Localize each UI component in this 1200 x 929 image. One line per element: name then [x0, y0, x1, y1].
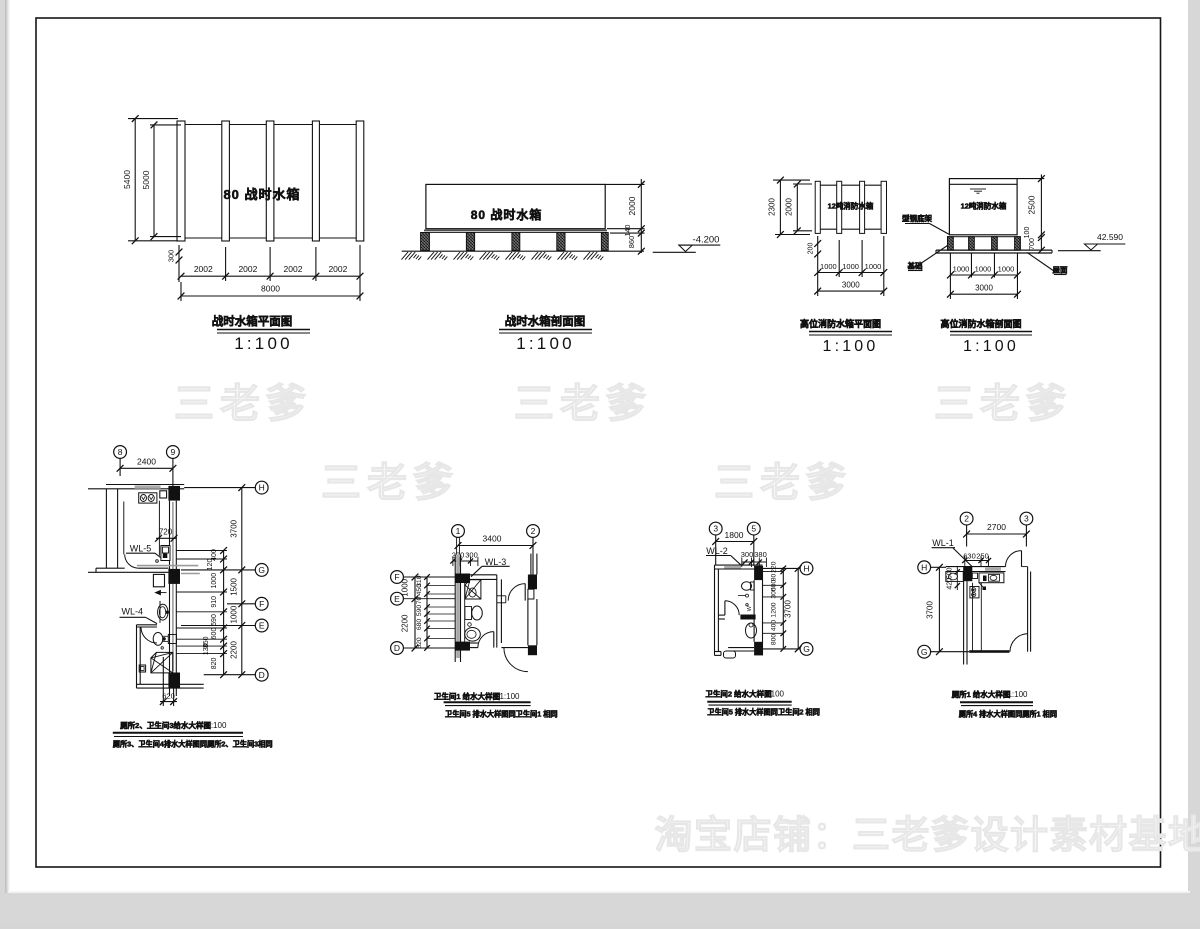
- svg-text:820: 820: [211, 657, 218, 669]
- svg-text:1800: 1800: [725, 530, 744, 540]
- svg-text:1000: 1000: [401, 578, 410, 596]
- svg-text:G: G: [258, 565, 265, 575]
- svg-text:D: D: [394, 643, 400, 653]
- svg-text:2300: 2300: [768, 198, 777, 216]
- svg-text:1000: 1000: [820, 262, 837, 271]
- svg-text:600: 600: [211, 628, 218, 640]
- svg-text:910: 910: [211, 596, 218, 608]
- svg-text:620: 620: [162, 692, 175, 701]
- svg-text:5: 5: [751, 524, 756, 534]
- svg-text:卫生间5 排水大样图同卫生间1 相同: 卫生间5 排水大样图同卫生间1 相同: [445, 710, 558, 719]
- svg-text:H: H: [803, 563, 809, 573]
- svg-text:220: 220: [771, 561, 778, 573]
- svg-text:高位消防水箱平面图: 高位消防水箱平面图: [800, 318, 881, 329]
- svg-text:2: 2: [531, 526, 536, 536]
- svg-text:1:100: 1:100: [516, 334, 575, 353]
- svg-text:F: F: [259, 599, 264, 609]
- svg-text:三老爹: 三老爹: [934, 382, 1072, 426]
- svg-text:1000: 1000: [953, 265, 970, 274]
- svg-text:2500: 2500: [1027, 195, 1037, 214]
- svg-text:8000: 8000: [261, 284, 280, 294]
- svg-text:高位消防水箱剖面图: 高位消防水箱剖面图: [940, 318, 1021, 329]
- svg-text:F: F: [394, 572, 399, 582]
- svg-text:300: 300: [771, 587, 778, 599]
- svg-text:三老爹: 三老爹: [514, 382, 652, 426]
- svg-text:100: 100: [1024, 227, 1031, 239]
- svg-text:三老爹: 三老爹: [714, 461, 852, 505]
- svg-text:3700: 3700: [229, 519, 238, 537]
- svg-text:380: 380: [754, 550, 767, 559]
- svg-text:厕所2、卫生间3给水大样图: 厕所2、卫生间3给水大样图: [120, 720, 211, 730]
- svg-text:200: 200: [808, 243, 815, 255]
- svg-text:型钢底架: 型钢底架: [902, 213, 932, 223]
- svg-text:70: 70: [416, 597, 423, 605]
- svg-text:2002: 2002: [284, 264, 303, 274]
- svg-text:E: E: [259, 621, 265, 631]
- svg-text:1:100: 1:100: [822, 338, 878, 355]
- svg-text:WL-2: WL-2: [706, 546, 728, 556]
- svg-text:1000: 1000: [211, 573, 218, 589]
- svg-text:2002: 2002: [194, 264, 213, 274]
- svg-text:1:100: 1:100: [499, 692, 520, 701]
- svg-text:1:100: 1:100: [206, 721, 227, 730]
- svg-text:720: 720: [159, 528, 173, 537]
- svg-text:三老爹: 三老爹: [174, 382, 312, 426]
- svg-text:1:100: 1:100: [764, 690, 785, 699]
- svg-text:-4.200: -4.200: [693, 235, 720, 246]
- svg-text:140: 140: [625, 225, 632, 237]
- svg-text:1:100: 1:100: [1007, 690, 1028, 699]
- svg-text:3: 3: [713, 524, 718, 534]
- svg-text:WL-4: WL-4: [122, 607, 144, 617]
- svg-text:3000: 3000: [842, 281, 860, 290]
- svg-text:620: 620: [416, 637, 423, 649]
- svg-text:W: W: [747, 605, 753, 611]
- svg-text:2700: 2700: [987, 522, 1006, 532]
- svg-text:12吨消防水箱: 12吨消防水箱: [828, 201, 874, 211]
- svg-text:淘宝店铺：三老爹设计素材基地: 淘宝店铺：三老爹设计素材基地: [654, 815, 1200, 857]
- svg-text:卫生间2 给水大样图: 卫生间2 给水大样图: [705, 689, 772, 699]
- svg-text:3: 3: [1024, 514, 1029, 524]
- svg-text:2002: 2002: [328, 264, 347, 274]
- svg-text:WL-5: WL-5: [130, 544, 152, 554]
- svg-text:1000: 1000: [842, 262, 859, 271]
- svg-text:D: D: [259, 670, 265, 680]
- svg-text:WL-1: WL-1: [932, 538, 954, 548]
- svg-text:1200: 1200: [771, 602, 778, 617]
- svg-text:42.590: 42.590: [1097, 232, 1123, 242]
- svg-text:5000: 5000: [141, 170, 151, 189]
- svg-text:H: H: [921, 562, 927, 572]
- svg-text:12吨消防水箱: 12吨消防水箱: [961, 201, 1007, 211]
- svg-text:590: 590: [211, 614, 218, 626]
- svg-text:8: 8: [118, 447, 123, 457]
- svg-text:450: 450: [416, 584, 423, 596]
- svg-text:800: 800: [771, 634, 778, 646]
- svg-text:80 战时水箱: 80 战时水箱: [223, 187, 300, 202]
- svg-text:1: 1: [456, 526, 461, 536]
- svg-text:2002: 2002: [238, 264, 257, 274]
- svg-text:120: 120: [207, 559, 214, 571]
- svg-text:1:100: 1:100: [234, 334, 293, 353]
- svg-text:基础: 基础: [907, 261, 923, 271]
- svg-text:300: 300: [465, 551, 478, 560]
- svg-text:80 战时水箱: 80 战时水箱: [471, 207, 543, 222]
- svg-text:1000: 1000: [229, 605, 238, 623]
- svg-text:三老爹: 三老爹: [321, 461, 459, 505]
- svg-text:590: 590: [416, 605, 423, 617]
- svg-text:860: 860: [627, 236, 636, 249]
- svg-text:厕所3、卫生间4排水大样图同厕所2、卫生间3相同: 厕所3、卫生间4排水大样图同厕所2、卫生间3相同: [113, 740, 273, 749]
- svg-text:3400: 3400: [483, 534, 502, 544]
- svg-text:屋面: 屋面: [1053, 266, 1069, 275]
- svg-text:1500: 1500: [229, 577, 238, 595]
- svg-text:5400: 5400: [122, 170, 132, 189]
- svg-text:400: 400: [771, 620, 778, 632]
- svg-text:H: H: [259, 483, 265, 493]
- svg-text:3700: 3700: [925, 601, 934, 619]
- svg-text:WL-3: WL-3: [485, 557, 507, 567]
- svg-text:680: 680: [416, 619, 423, 631]
- svg-text:卫生间5 排水大样图同卫生间2 相同: 卫生间5 排水大样图同卫生间2 相同: [707, 708, 820, 717]
- svg-text:2400: 2400: [137, 457, 156, 467]
- svg-text:2000: 2000: [785, 198, 794, 216]
- svg-text:9: 9: [171, 447, 176, 457]
- svg-text:2200: 2200: [401, 614, 410, 632]
- svg-text:厕所1 给水大样图: 厕所1 给水大样图: [952, 689, 1011, 699]
- svg-text:2: 2: [964, 514, 969, 524]
- svg-text:G: G: [921, 647, 928, 657]
- svg-text:130: 130: [203, 643, 210, 655]
- svg-text:2200: 2200: [229, 641, 238, 659]
- svg-text:G: G: [803, 644, 810, 654]
- svg-text:1000: 1000: [865, 262, 882, 271]
- svg-text:卫生间1 给水大样图: 卫生间1 给水大样图: [434, 691, 501, 701]
- svg-text:1:100: 1:100: [963, 338, 1019, 355]
- svg-text:700: 700: [1029, 238, 1036, 250]
- svg-text:3000: 3000: [975, 284, 993, 293]
- svg-text:300: 300: [167, 250, 176, 263]
- svg-text:1000: 1000: [998, 265, 1015, 274]
- svg-text:2000: 2000: [627, 196, 637, 215]
- svg-text:战时水箱剖面图: 战时水箱剖面图: [505, 314, 586, 328]
- svg-text:厕所4 排水大样图同厕所1 相同: 厕所4 排水大样图同厕所1 相同: [959, 709, 1057, 718]
- svg-text:3700: 3700: [784, 600, 793, 618]
- svg-text:1000: 1000: [975, 265, 992, 274]
- svg-text:E: E: [394, 594, 400, 604]
- svg-text:战时水箱平面图: 战时水箱平面图: [212, 314, 293, 328]
